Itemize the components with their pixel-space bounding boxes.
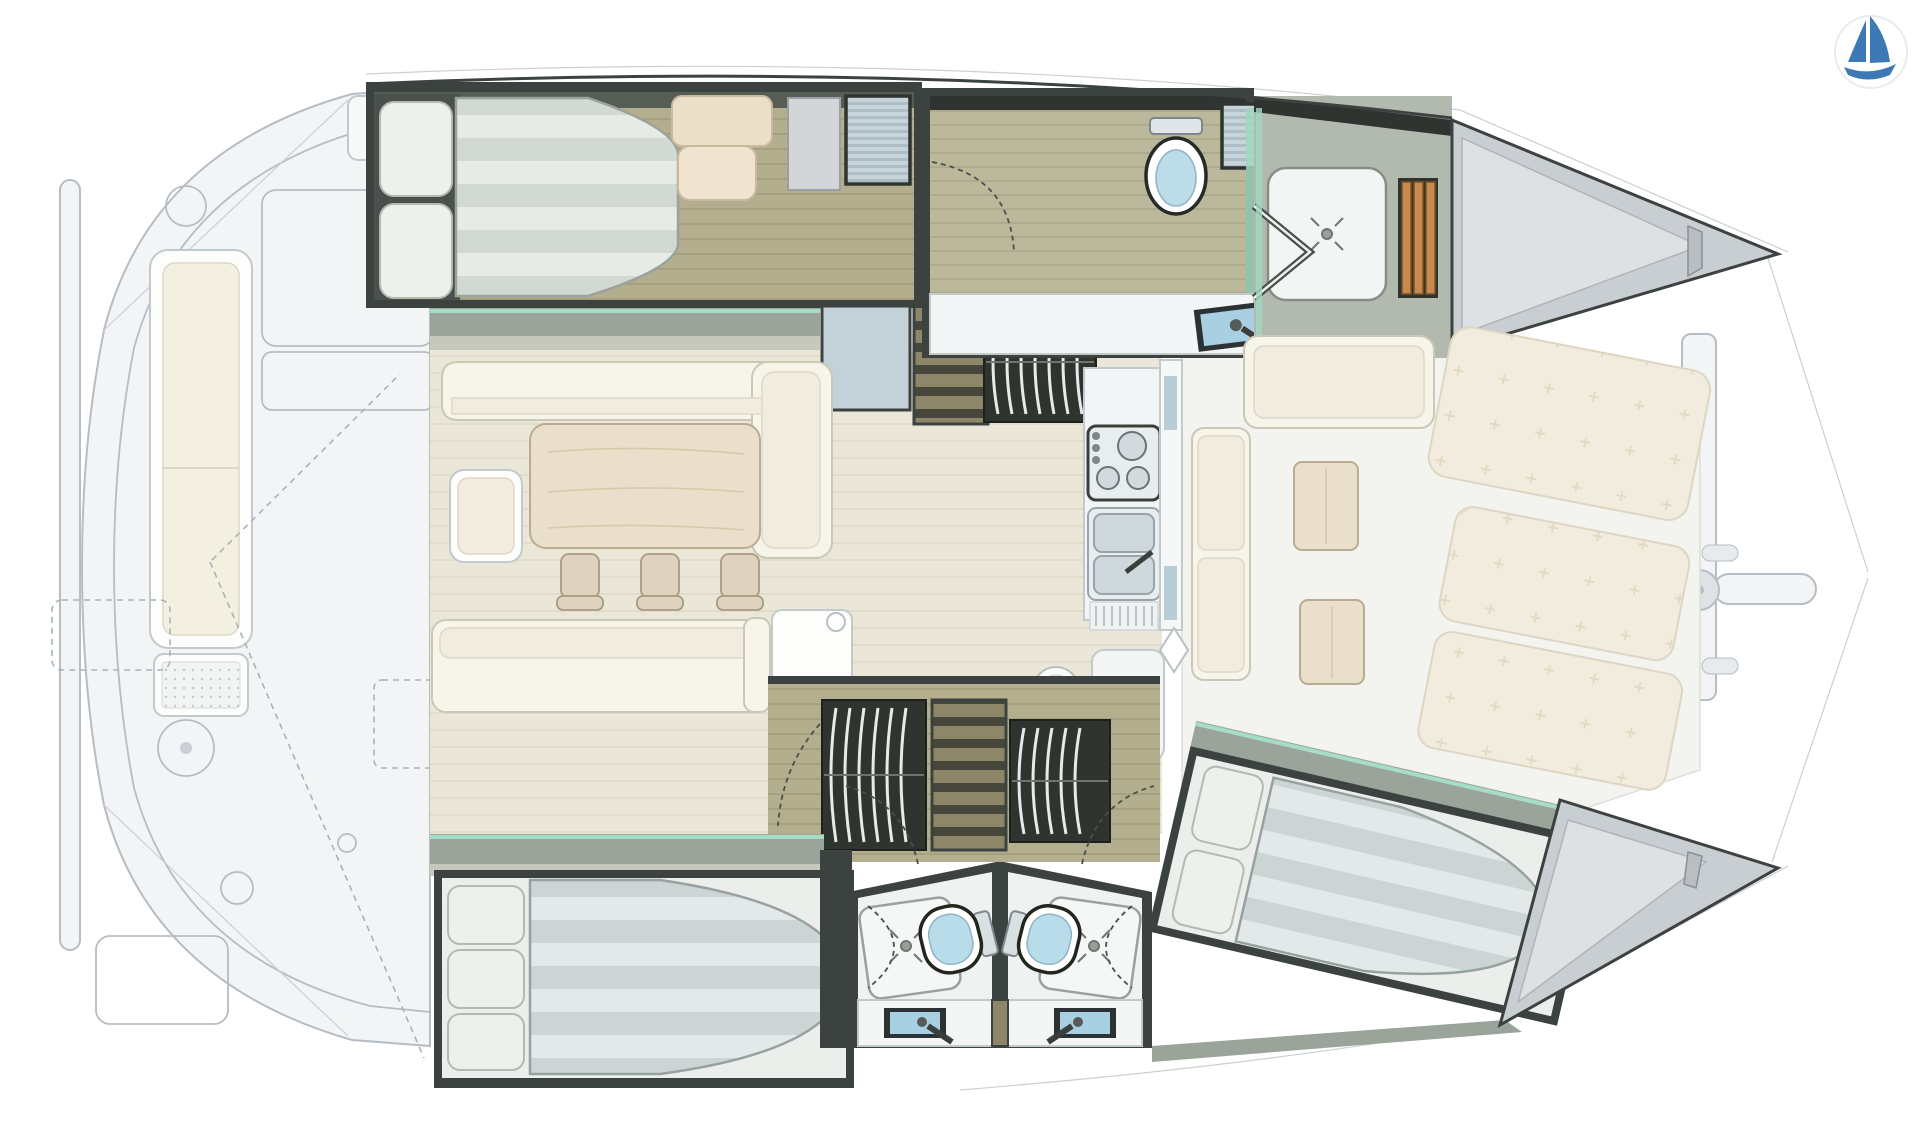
companionway-steps — [932, 700, 1006, 850]
beam-cleat — [1702, 545, 1738, 561]
cooler-box — [772, 610, 852, 684]
aft-sofa-arm — [744, 618, 770, 712]
sink-basin — [1094, 514, 1154, 552]
faucet-knob — [1073, 1017, 1083, 1027]
bench-cushion — [1198, 558, 1244, 672]
window-pane — [1164, 376, 1177, 430]
lower-companionway — [822, 700, 1110, 850]
sailboat-logo — [1835, 16, 1907, 88]
aft-sofa-back — [440, 628, 756, 658]
hull-partition — [820, 850, 852, 1048]
wardrobe — [788, 98, 840, 190]
grill-grate — [162, 662, 240, 708]
corner-bench-cushion — [1254, 346, 1424, 418]
deck-fitting-center — [180, 742, 192, 754]
chair — [637, 554, 683, 610]
bow-bulkhead — [1688, 226, 1702, 276]
chaise-cushion — [458, 478, 514, 554]
floor-plan-canvas — [0, 0, 1920, 1129]
burner — [1127, 467, 1149, 489]
burner — [1118, 432, 1146, 460]
sink-basin — [1094, 556, 1154, 594]
toilet-bowl — [1156, 150, 1196, 206]
bathroom-top-band — [930, 96, 1246, 110]
galley — [1084, 368, 1164, 630]
upper-aft-cabin-bed — [456, 98, 678, 296]
companionway-storage — [822, 306, 910, 410]
trampoline-line — [1772, 578, 1868, 862]
corridor-top-edge — [768, 676, 1160, 684]
teak-slat — [1426, 182, 1435, 294]
pillow — [448, 886, 524, 944]
cabin-seat — [678, 146, 756, 200]
stove-knob — [1092, 432, 1100, 440]
cabin-sill-step — [430, 336, 820, 350]
stove-knob — [1092, 444, 1100, 452]
pillow — [380, 102, 452, 196]
sofa-corner-cushion — [762, 372, 820, 548]
bowsprit — [1714, 574, 1816, 604]
cabin-seat-back — [672, 96, 772, 146]
faucet-knob — [917, 1017, 927, 1027]
vanity-divider — [992, 1000, 1008, 1046]
lower-bathrooms — [848, 862, 1152, 1048]
drainboard — [1090, 602, 1158, 630]
stove-knob — [1092, 456, 1100, 464]
window-pane — [1164, 566, 1177, 620]
trampoline-line — [1768, 258, 1868, 572]
teak-slat — [1402, 182, 1411, 294]
chair — [717, 554, 763, 610]
cabin-locker — [846, 96, 910, 184]
pillow — [448, 1014, 524, 1070]
floor-plan-drawing — [0, 0, 1920, 1129]
teak-slat — [1414, 182, 1423, 294]
hull-deck-band — [1152, 1020, 1522, 1062]
beam-cleat — [1702, 658, 1738, 674]
dining-chairs — [557, 554, 763, 610]
pillow — [448, 950, 524, 1008]
pillow — [380, 204, 452, 298]
sofa-seat-edge — [452, 398, 796, 414]
hull-bottom-edge — [434, 1078, 854, 1088]
burner — [1097, 467, 1119, 489]
chair — [557, 554, 603, 610]
toilet-tank — [1150, 118, 1202, 134]
cockpit-bench-cushion — [163, 263, 239, 635]
transom-edge — [60, 180, 80, 950]
wall-accent — [1256, 108, 1262, 356]
bench-cushion — [1198, 436, 1244, 550]
